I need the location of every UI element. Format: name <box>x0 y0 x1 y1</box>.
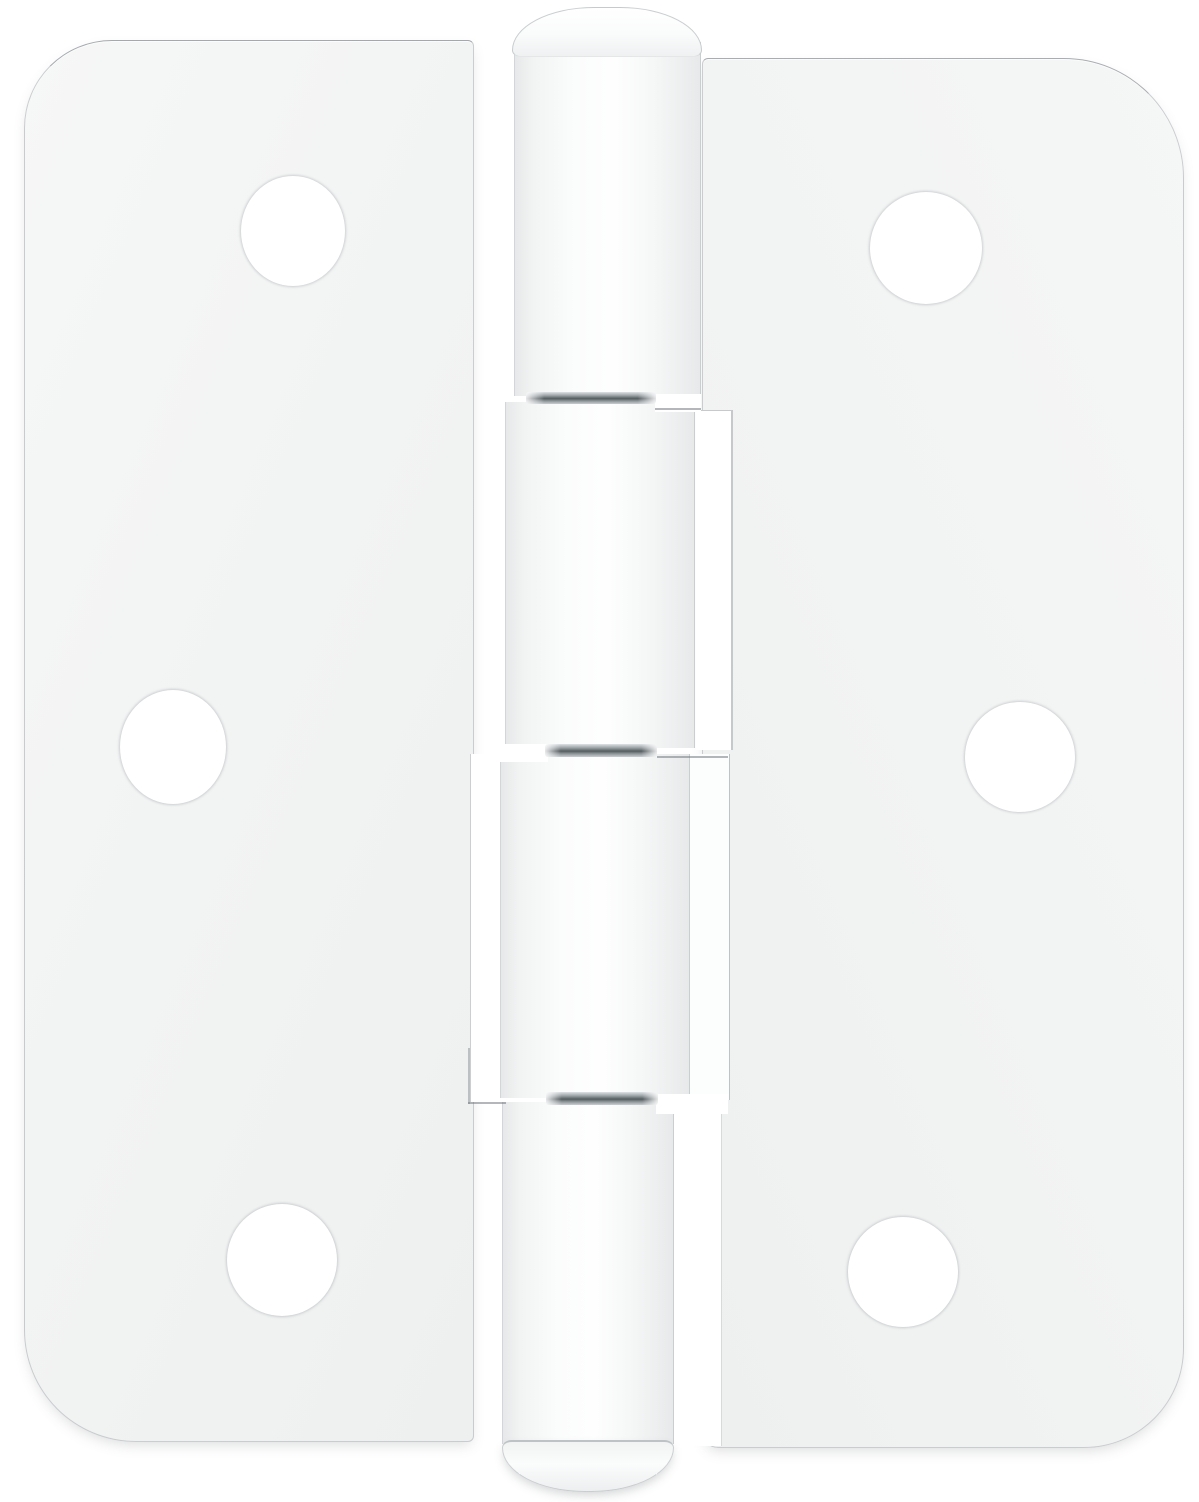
leaf-curl-highlight-left <box>470 754 504 1102</box>
knuckle-2 <box>505 402 695 748</box>
screw-hole-right-middle <box>965 702 1075 812</box>
leaf-curl-highlight-right-upper <box>696 410 733 750</box>
pin-cap-bottom <box>502 1440 674 1492</box>
cut-line-right-middle <box>657 756 728 758</box>
screw-hole-right-top <box>870 192 982 304</box>
cut-line-right-upper <box>655 408 701 410</box>
screw-hole-left-middle <box>120 690 226 804</box>
screw-hole-left-bottom <box>227 1204 337 1316</box>
pin-slot-bottom <box>656 1094 728 1114</box>
pin-cap-top <box>512 7 702 57</box>
pin-joint-bottom <box>546 1092 658 1105</box>
cut-line-left-vertical <box>468 1048 470 1104</box>
cut-line-left-horizontal <box>468 1102 506 1104</box>
screw-hole-right-bottom <box>848 1217 958 1327</box>
leaf-curl-highlight-right-lower <box>690 754 730 1100</box>
product-photo-hinge <box>0 0 1199 1502</box>
pin-slot-middle <box>499 744 548 762</box>
pin-joint-top <box>526 392 656 404</box>
pin-joint-middle <box>545 744 657 757</box>
leaf-cut-gap-right-bottom <box>676 1102 722 1446</box>
screw-hole-left-top <box>241 176 345 286</box>
knuckle-4 <box>502 1102 674 1444</box>
knuckle-1 <box>514 42 701 396</box>
knuckle-3 <box>500 754 690 1098</box>
